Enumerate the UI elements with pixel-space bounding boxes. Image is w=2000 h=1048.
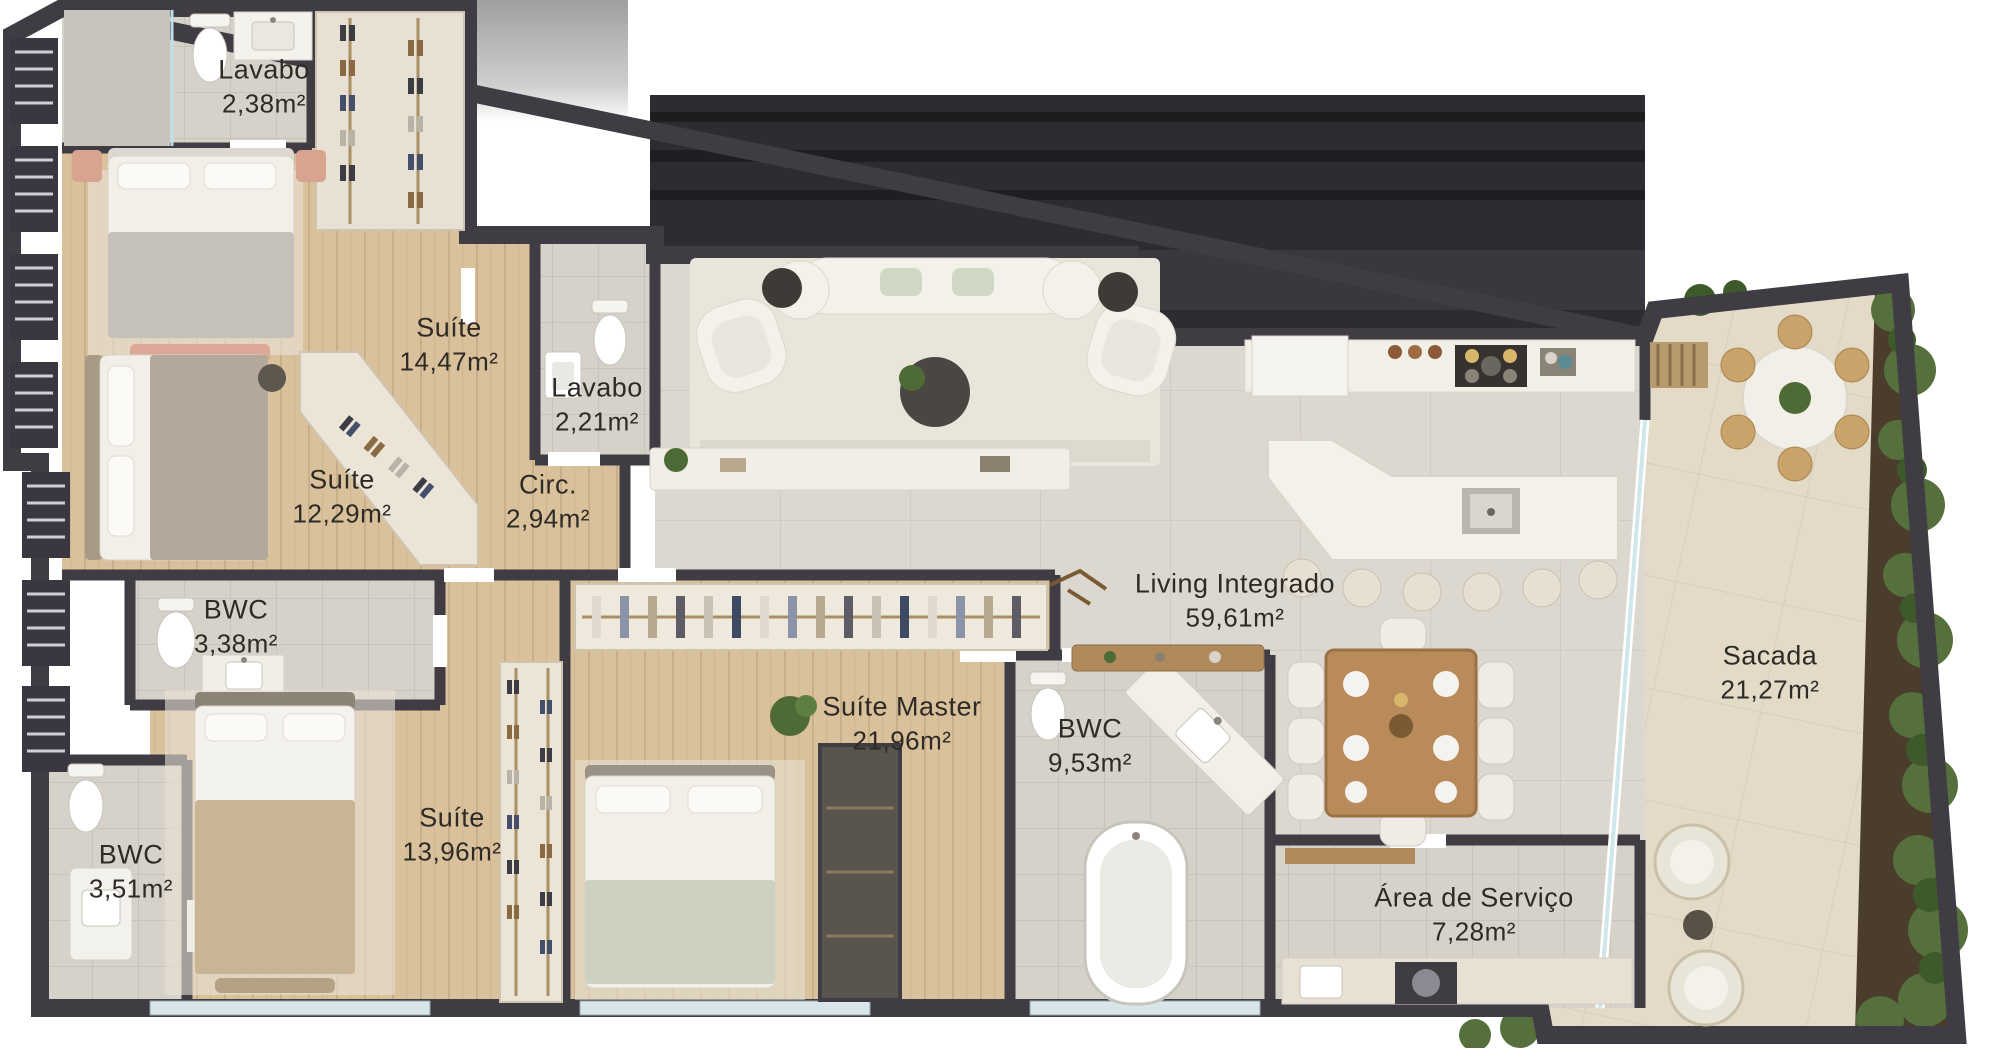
console-bench [1072, 645, 1264, 671]
bed-suite-1 [72, 148, 326, 362]
room-label-bwc-2: BWC 3,51m² [89, 838, 173, 907]
room-label-sacada: Sacada 21,27m² [1721, 639, 1820, 708]
room-label-bwc-master: BWC 9,53m² [1048, 712, 1132, 781]
louver-windows [10, 38, 70, 772]
room-label-suite-3: Suíte 13,96m² [403, 801, 502, 870]
bed-suite-3 [165, 690, 395, 995]
master-wardrobe [820, 745, 900, 1000]
sideboard [650, 448, 1070, 490]
bed-suite-master [575, 760, 805, 1000]
room-label-lavabo-2: Lavabo 2,21m² [551, 371, 643, 440]
closet-shoe-rack-suite3 [500, 662, 562, 1002]
master-closet-corridor [575, 584, 1047, 650]
room-label-suite-1: Suíte 14,47m² [400, 311, 499, 380]
sofa [771, 258, 1101, 319]
closet-shoe-rack-top [316, 12, 464, 230]
room-label-suite-master: Suíte Master 21,96m² [822, 690, 981, 759]
room-label-suite-2: Suíte 12,29m² [293, 463, 392, 532]
room-label-bwc-1: BWC 3,38m² [194, 593, 278, 662]
bed-suite-2 [85, 355, 286, 560]
room-label-circulacao: Circ. 2,94m² [506, 468, 590, 537]
room-label-lavabo-1: Lavabo 2,38m² [218, 53, 310, 122]
room-label-living-integrado: Living Integrado 59,61m² [1135, 567, 1335, 636]
floor-plan-canvas: Lavabo 2,38m² Suíte 14,47m² Lavabo 2,21m… [0, 0, 2000, 1048]
room-label-area-servico: Área de Serviço 7,28m² [1374, 881, 1574, 950]
